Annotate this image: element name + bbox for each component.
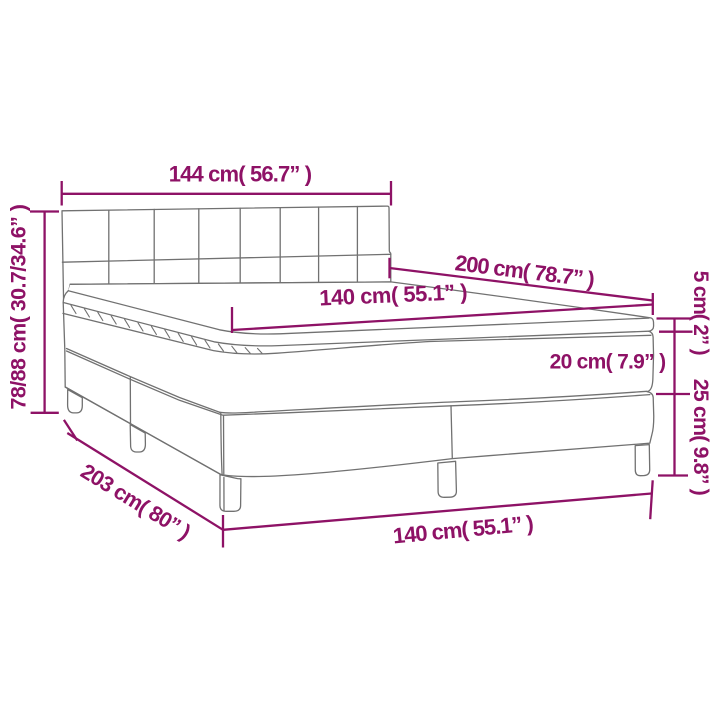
svg-text:78/88 cm( 30.7/34.6” ): 78/88 cm( 30.7/34.6” ) <box>7 204 31 409</box>
svg-text:144 cm( 56.7” ): 144 cm( 56.7” ) <box>169 161 312 186</box>
svg-text:25 cm( 9.8” ): 25 cm( 9.8” ) <box>689 379 713 496</box>
svg-text:140 cm( 55.1” ): 140 cm( 55.1” ) <box>392 511 535 549</box>
svg-text:5 cm( 2” ): 5 cm( 2” ) <box>689 271 712 355</box>
svg-text:20 cm( 7.9” ): 20 cm( 7.9” ) <box>550 350 666 373</box>
